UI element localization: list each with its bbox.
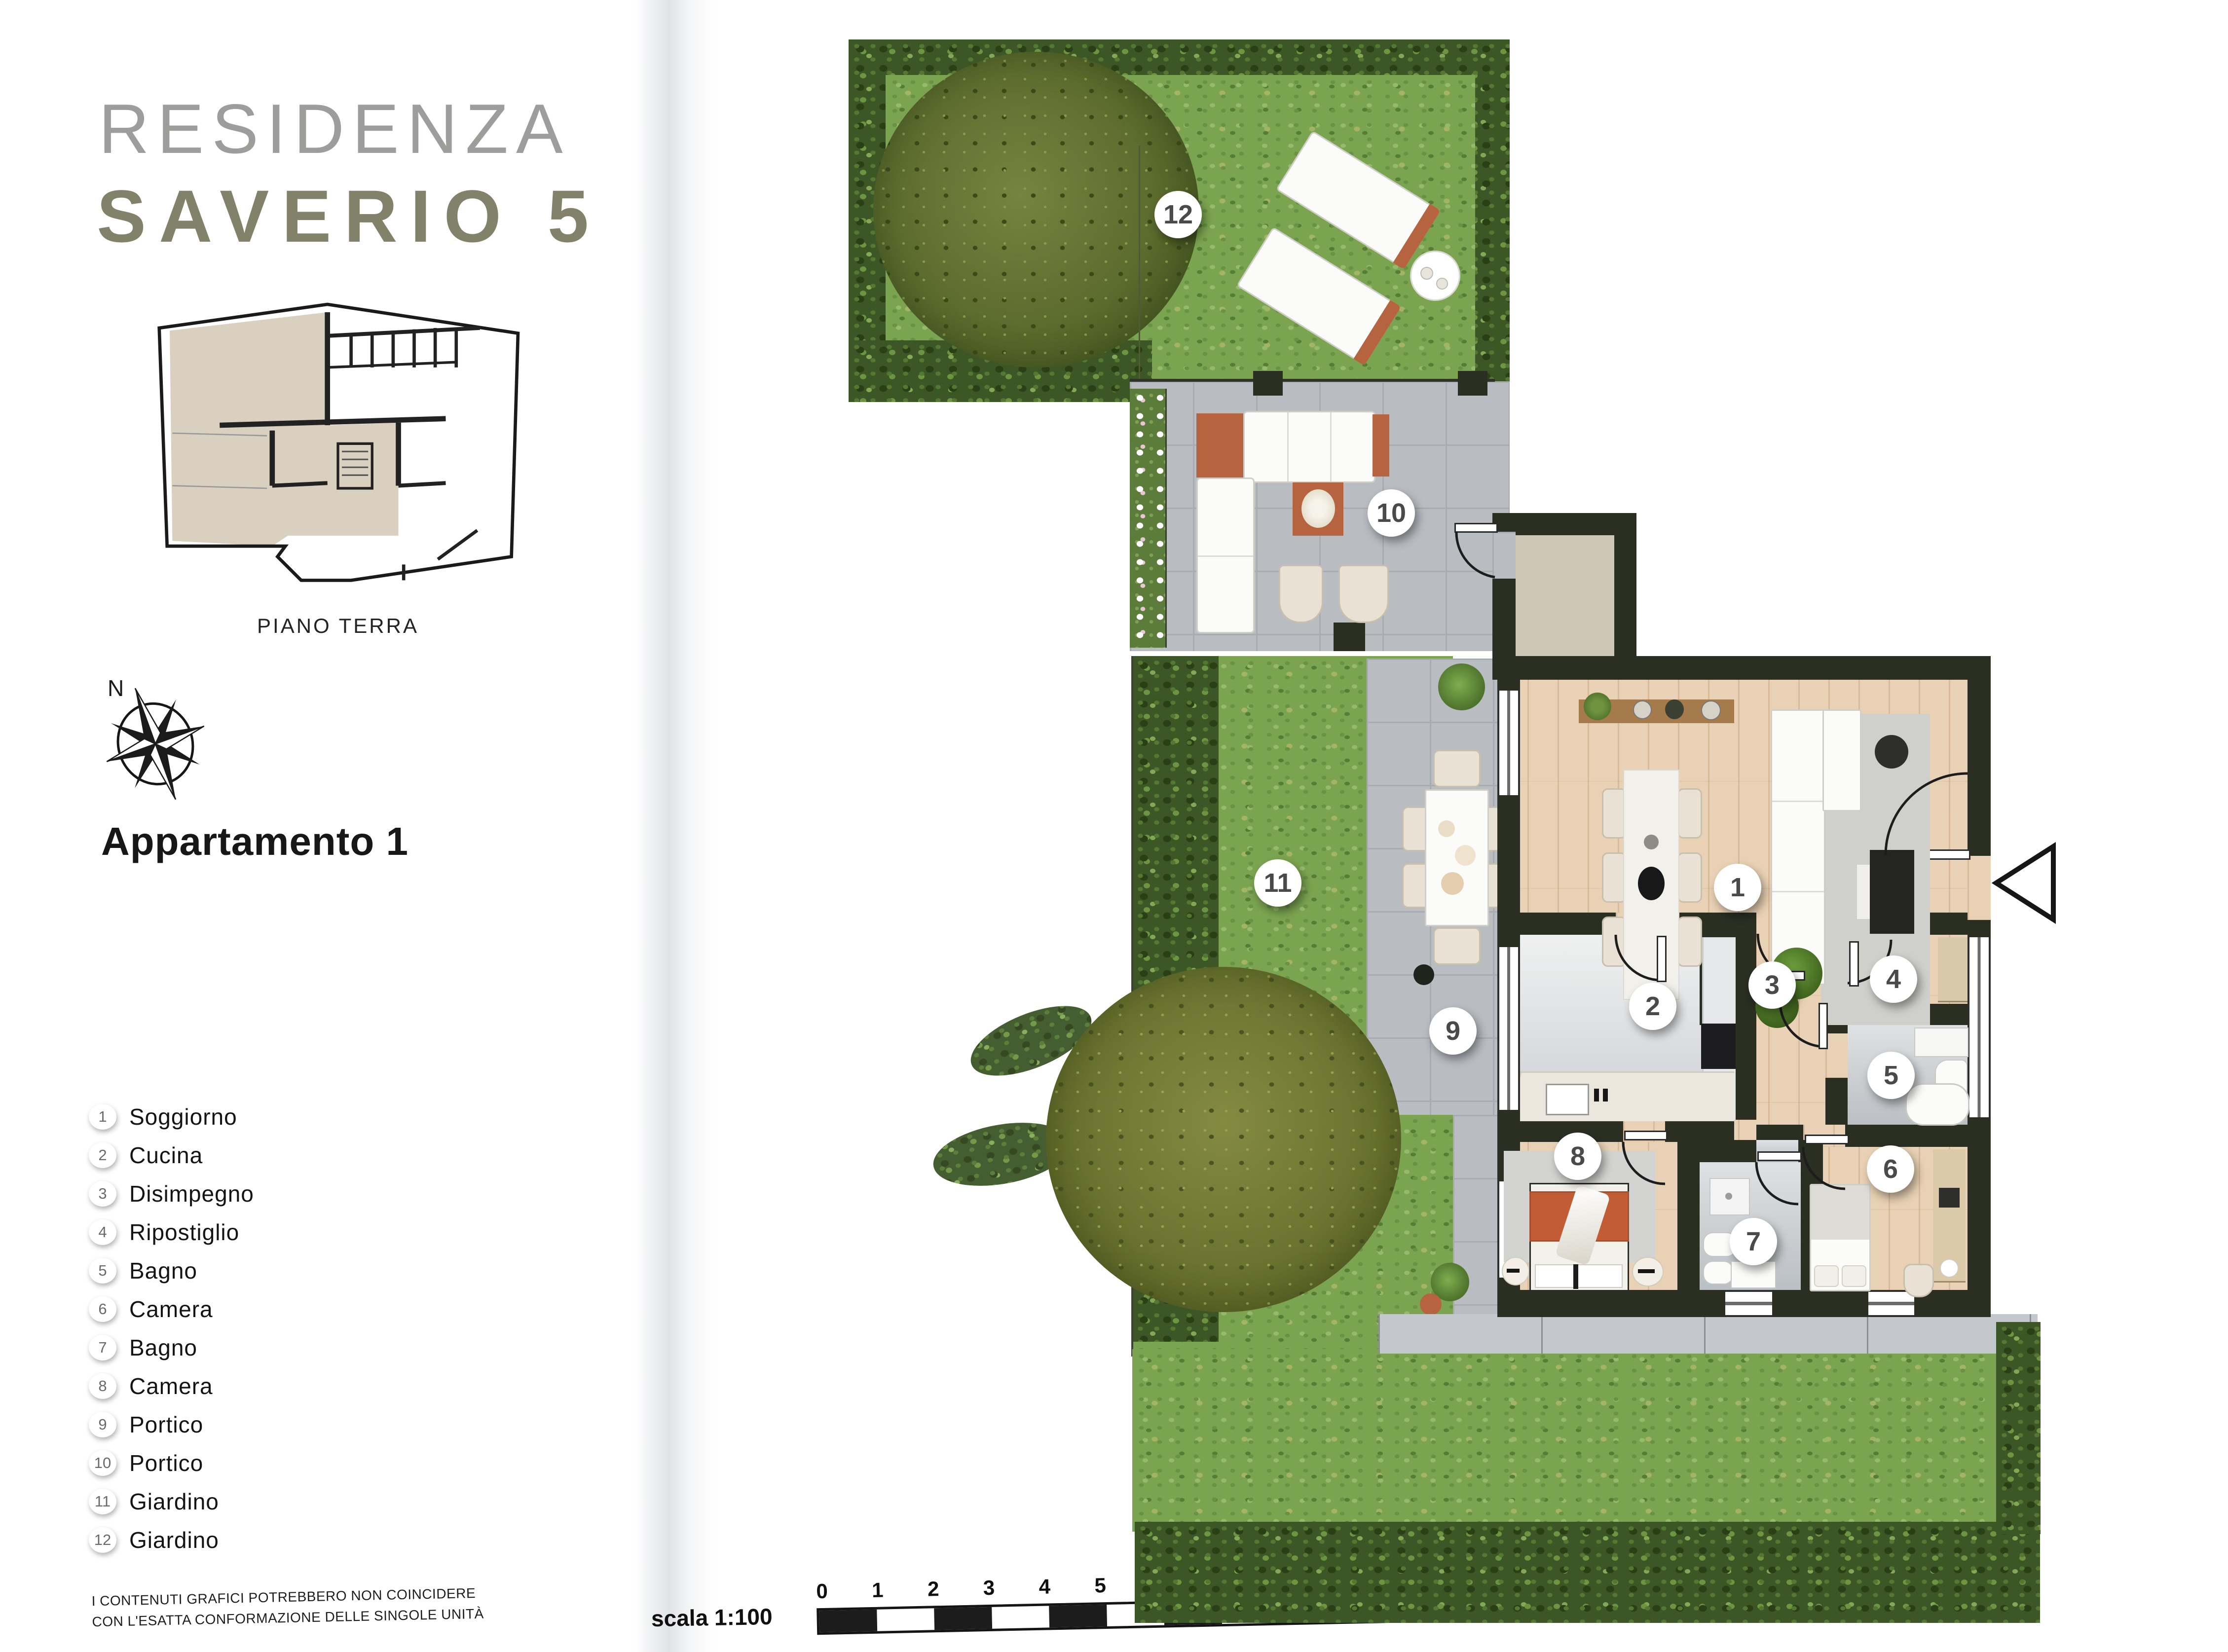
door-leaf bbox=[1657, 936, 1667, 982]
plan-badge-cucina: 2 bbox=[1629, 983, 1676, 1030]
door-swing-overlay bbox=[0, 0, 2228, 1652]
plan-badge-camera-6: 6 bbox=[1867, 1145, 1914, 1193]
plan-badge-camera-8: 8 bbox=[1554, 1133, 1601, 1180]
door-leaf bbox=[1849, 941, 1859, 987]
door-leaf bbox=[1624, 1131, 1668, 1140]
plan-badge-bagno-7: 7 bbox=[1730, 1218, 1777, 1265]
door-leaf bbox=[1757, 1151, 1802, 1161]
plan-badge-ripostiglio: 4 bbox=[1870, 955, 1917, 1003]
plan-badge-giardino-11: 11 bbox=[1254, 859, 1301, 907]
plan-badge-bagno-5: 5 bbox=[1867, 1052, 1915, 1099]
brochure-page: RESIDENZA SAVERIO 5 PIANO TERRA N bbox=[0, 0, 2228, 1652]
entrance-arrow-icon bbox=[1996, 846, 2053, 919]
plan-badge-giardino-12: 12 bbox=[1154, 191, 1202, 238]
door-leaf bbox=[1819, 1003, 1828, 1049]
plan-badge-portico-10: 10 bbox=[1368, 489, 1415, 537]
plan-badge-soggiorno: 1 bbox=[1714, 864, 1761, 911]
door-leaf bbox=[1805, 1135, 1849, 1144]
plan-badge-disimpegno: 3 bbox=[1748, 961, 1796, 1009]
plan-badge-portico-9: 9 bbox=[1429, 1007, 1477, 1055]
